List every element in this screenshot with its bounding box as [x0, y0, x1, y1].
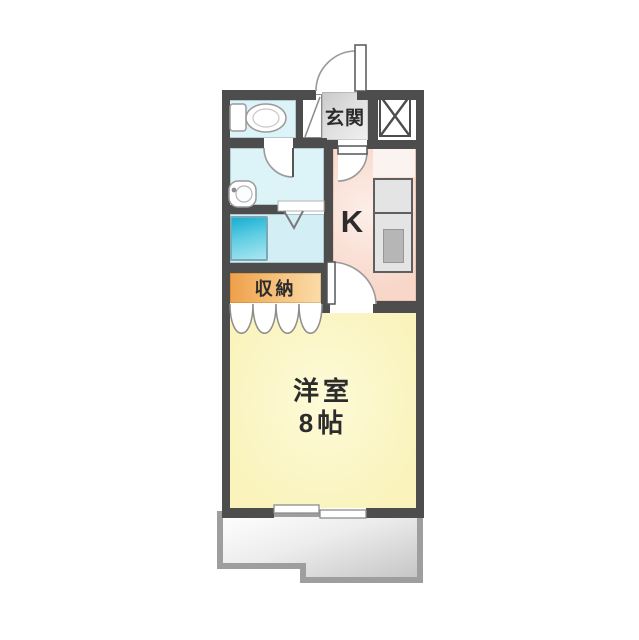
closet-scallop — [276, 304, 299, 333]
main-room-name: 洋室 — [293, 375, 353, 407]
toilet-tank — [230, 104, 246, 131]
closet-scallop — [230, 304, 253, 333]
main-room-label: 洋室 8帖 — [230, 375, 416, 439]
main-room-size: 8帖 — [299, 407, 347, 439]
washbasin-faucet — [232, 188, 237, 193]
toilet-bowl — [246, 104, 286, 132]
pipe-shaft-x-icon — [381, 97, 409, 135]
living-door-leaf — [327, 262, 335, 304]
bath-folding-door — [284, 211, 303, 228]
window-pane-left — [274, 505, 319, 513]
entrance-label: 玄関 — [322, 92, 368, 140]
symbols-layer — [0, 0, 639, 640]
front-door-leaf — [355, 45, 366, 91]
storage-label: 収納 — [230, 274, 321, 302]
shoe-cabinet-diagonal — [305, 97, 320, 137]
bath-door-track — [278, 201, 324, 211]
washbasin-bowl — [236, 186, 252, 202]
closet-scallop — [253, 304, 276, 333]
floor-plan-canvas: 玄関 K 収納 洋室 8帖 — [0, 0, 639, 640]
kitchen-label: K — [332, 202, 372, 242]
kitchen-door-leaf — [338, 146, 367, 154]
window-pane-right — [320, 510, 366, 518]
closet-scallop — [299, 304, 322, 333]
